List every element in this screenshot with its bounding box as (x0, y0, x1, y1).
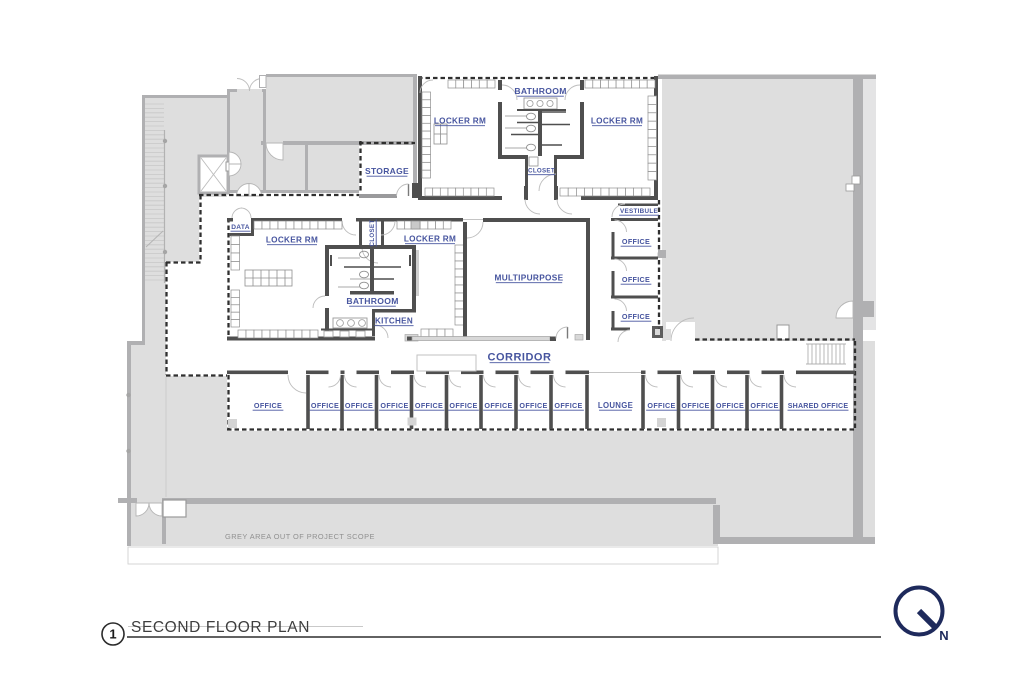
svg-text:OFFICE: OFFICE (449, 401, 477, 410)
svg-text:SHARED OFFICE: SHARED OFFICE (788, 402, 849, 410)
svg-text:OFFICE: OFFICE (622, 275, 650, 284)
svg-text:OFFICE: OFFICE (380, 401, 408, 410)
svg-text:OFFICE: OFFICE (647, 401, 675, 410)
svg-text:CLOSET: CLOSET (369, 220, 376, 247)
svg-text:OFFICE: OFFICE (681, 401, 709, 410)
svg-text:LOCKER RM: LOCKER RM (591, 117, 643, 126)
svg-text:VESTIBULE: VESTIBULE (620, 208, 658, 215)
svg-text:OFFICE: OFFICE (415, 401, 443, 410)
svg-text:N: N (939, 628, 948, 643)
svg-text:OFFICE: OFFICE (622, 237, 650, 246)
svg-text:LOCKER RM: LOCKER RM (266, 236, 318, 245)
svg-text:OFFICE: OFFICE (519, 401, 547, 410)
svg-text:OFFICE: OFFICE (484, 401, 512, 410)
svg-text:OFFICE: OFFICE (254, 401, 282, 410)
svg-text:MULTIPURPOSE: MULTIPURPOSE (495, 273, 564, 283)
svg-text:OFFICE: OFFICE (311, 401, 339, 410)
svg-text:SECOND FLOOR PLAN: SECOND FLOOR PLAN (131, 619, 310, 636)
svg-text:STORAGE: STORAGE (365, 166, 409, 176)
svg-text:GREY AREA OUT OF PROJECT SCOPE: GREY AREA OUT OF PROJECT SCOPE (225, 532, 375, 541)
svg-text:OFFICE: OFFICE (750, 401, 778, 410)
svg-text:BATHROOM: BATHROOM (346, 296, 398, 306)
svg-text:LOCKER RM: LOCKER RM (434, 117, 486, 126)
svg-text:LOUNGE: LOUNGE (598, 401, 633, 410)
svg-text:DATA: DATA (231, 224, 250, 231)
svg-text:OFFICE: OFFICE (622, 312, 650, 321)
svg-text:OFFICE: OFFICE (554, 401, 582, 410)
svg-text:OFFICE: OFFICE (345, 401, 373, 410)
svg-text:BATHROOM: BATHROOM (514, 86, 566, 96)
svg-text:CORRIDOR: CORRIDOR (488, 352, 552, 364)
svg-text:LOCKER RM: LOCKER RM (404, 235, 456, 244)
svg-text:CLOSET: CLOSET (528, 168, 555, 175)
svg-text:KITCHEN: KITCHEN (375, 317, 413, 326)
svg-text:1: 1 (109, 627, 116, 642)
svg-text:OFFICE: OFFICE (716, 401, 744, 410)
